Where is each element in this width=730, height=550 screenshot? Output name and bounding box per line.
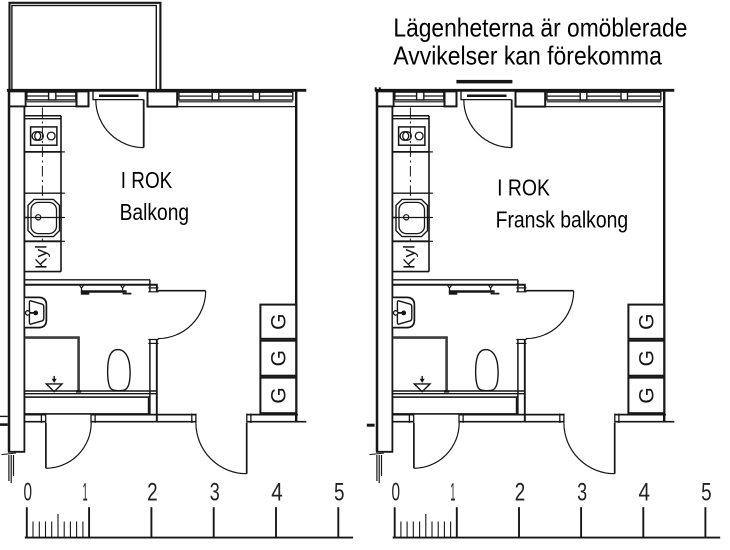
svg-text:Kyl: Kyl bbox=[33, 245, 50, 269]
svg-text:4: 4 bbox=[271, 479, 283, 507]
svg-text:G: G bbox=[268, 314, 291, 330]
svg-text:I ROK: I ROK bbox=[497, 175, 550, 201]
svg-text:G: G bbox=[268, 387, 291, 403]
svg-text:G: G bbox=[636, 350, 659, 366]
svg-text:Lägenheterna är omöblerade: Lägenheterna är omöblerade bbox=[393, 12, 687, 42]
svg-text:1: 1 bbox=[83, 479, 88, 507]
svg-text:0: 0 bbox=[24, 479, 33, 507]
svg-text:G: G bbox=[268, 350, 291, 366]
svg-text:Fransk balkong: Fransk balkong bbox=[496, 206, 629, 232]
svg-text:0: 0 bbox=[391, 479, 400, 507]
svg-text:4: 4 bbox=[639, 479, 651, 507]
svg-text:Avvikelser kan förekomma: Avvikelser kan förekomma bbox=[393, 40, 662, 70]
svg-text:2: 2 bbox=[147, 479, 158, 507]
svg-text:2: 2 bbox=[515, 479, 526, 507]
svg-text:3: 3 bbox=[210, 479, 220, 507]
svg-text:5: 5 bbox=[701, 479, 712, 507]
svg-text:1: 1 bbox=[450, 479, 455, 507]
svg-text:Kyl: Kyl bbox=[401, 245, 418, 269]
svg-text:Balkong: Balkong bbox=[120, 199, 190, 225]
svg-text:I ROK: I ROK bbox=[121, 167, 173, 193]
svg-text:3: 3 bbox=[577, 479, 587, 507]
svg-text:5: 5 bbox=[334, 479, 345, 507]
svg-text:G: G bbox=[636, 387, 659, 403]
svg-text:G: G bbox=[636, 314, 659, 330]
